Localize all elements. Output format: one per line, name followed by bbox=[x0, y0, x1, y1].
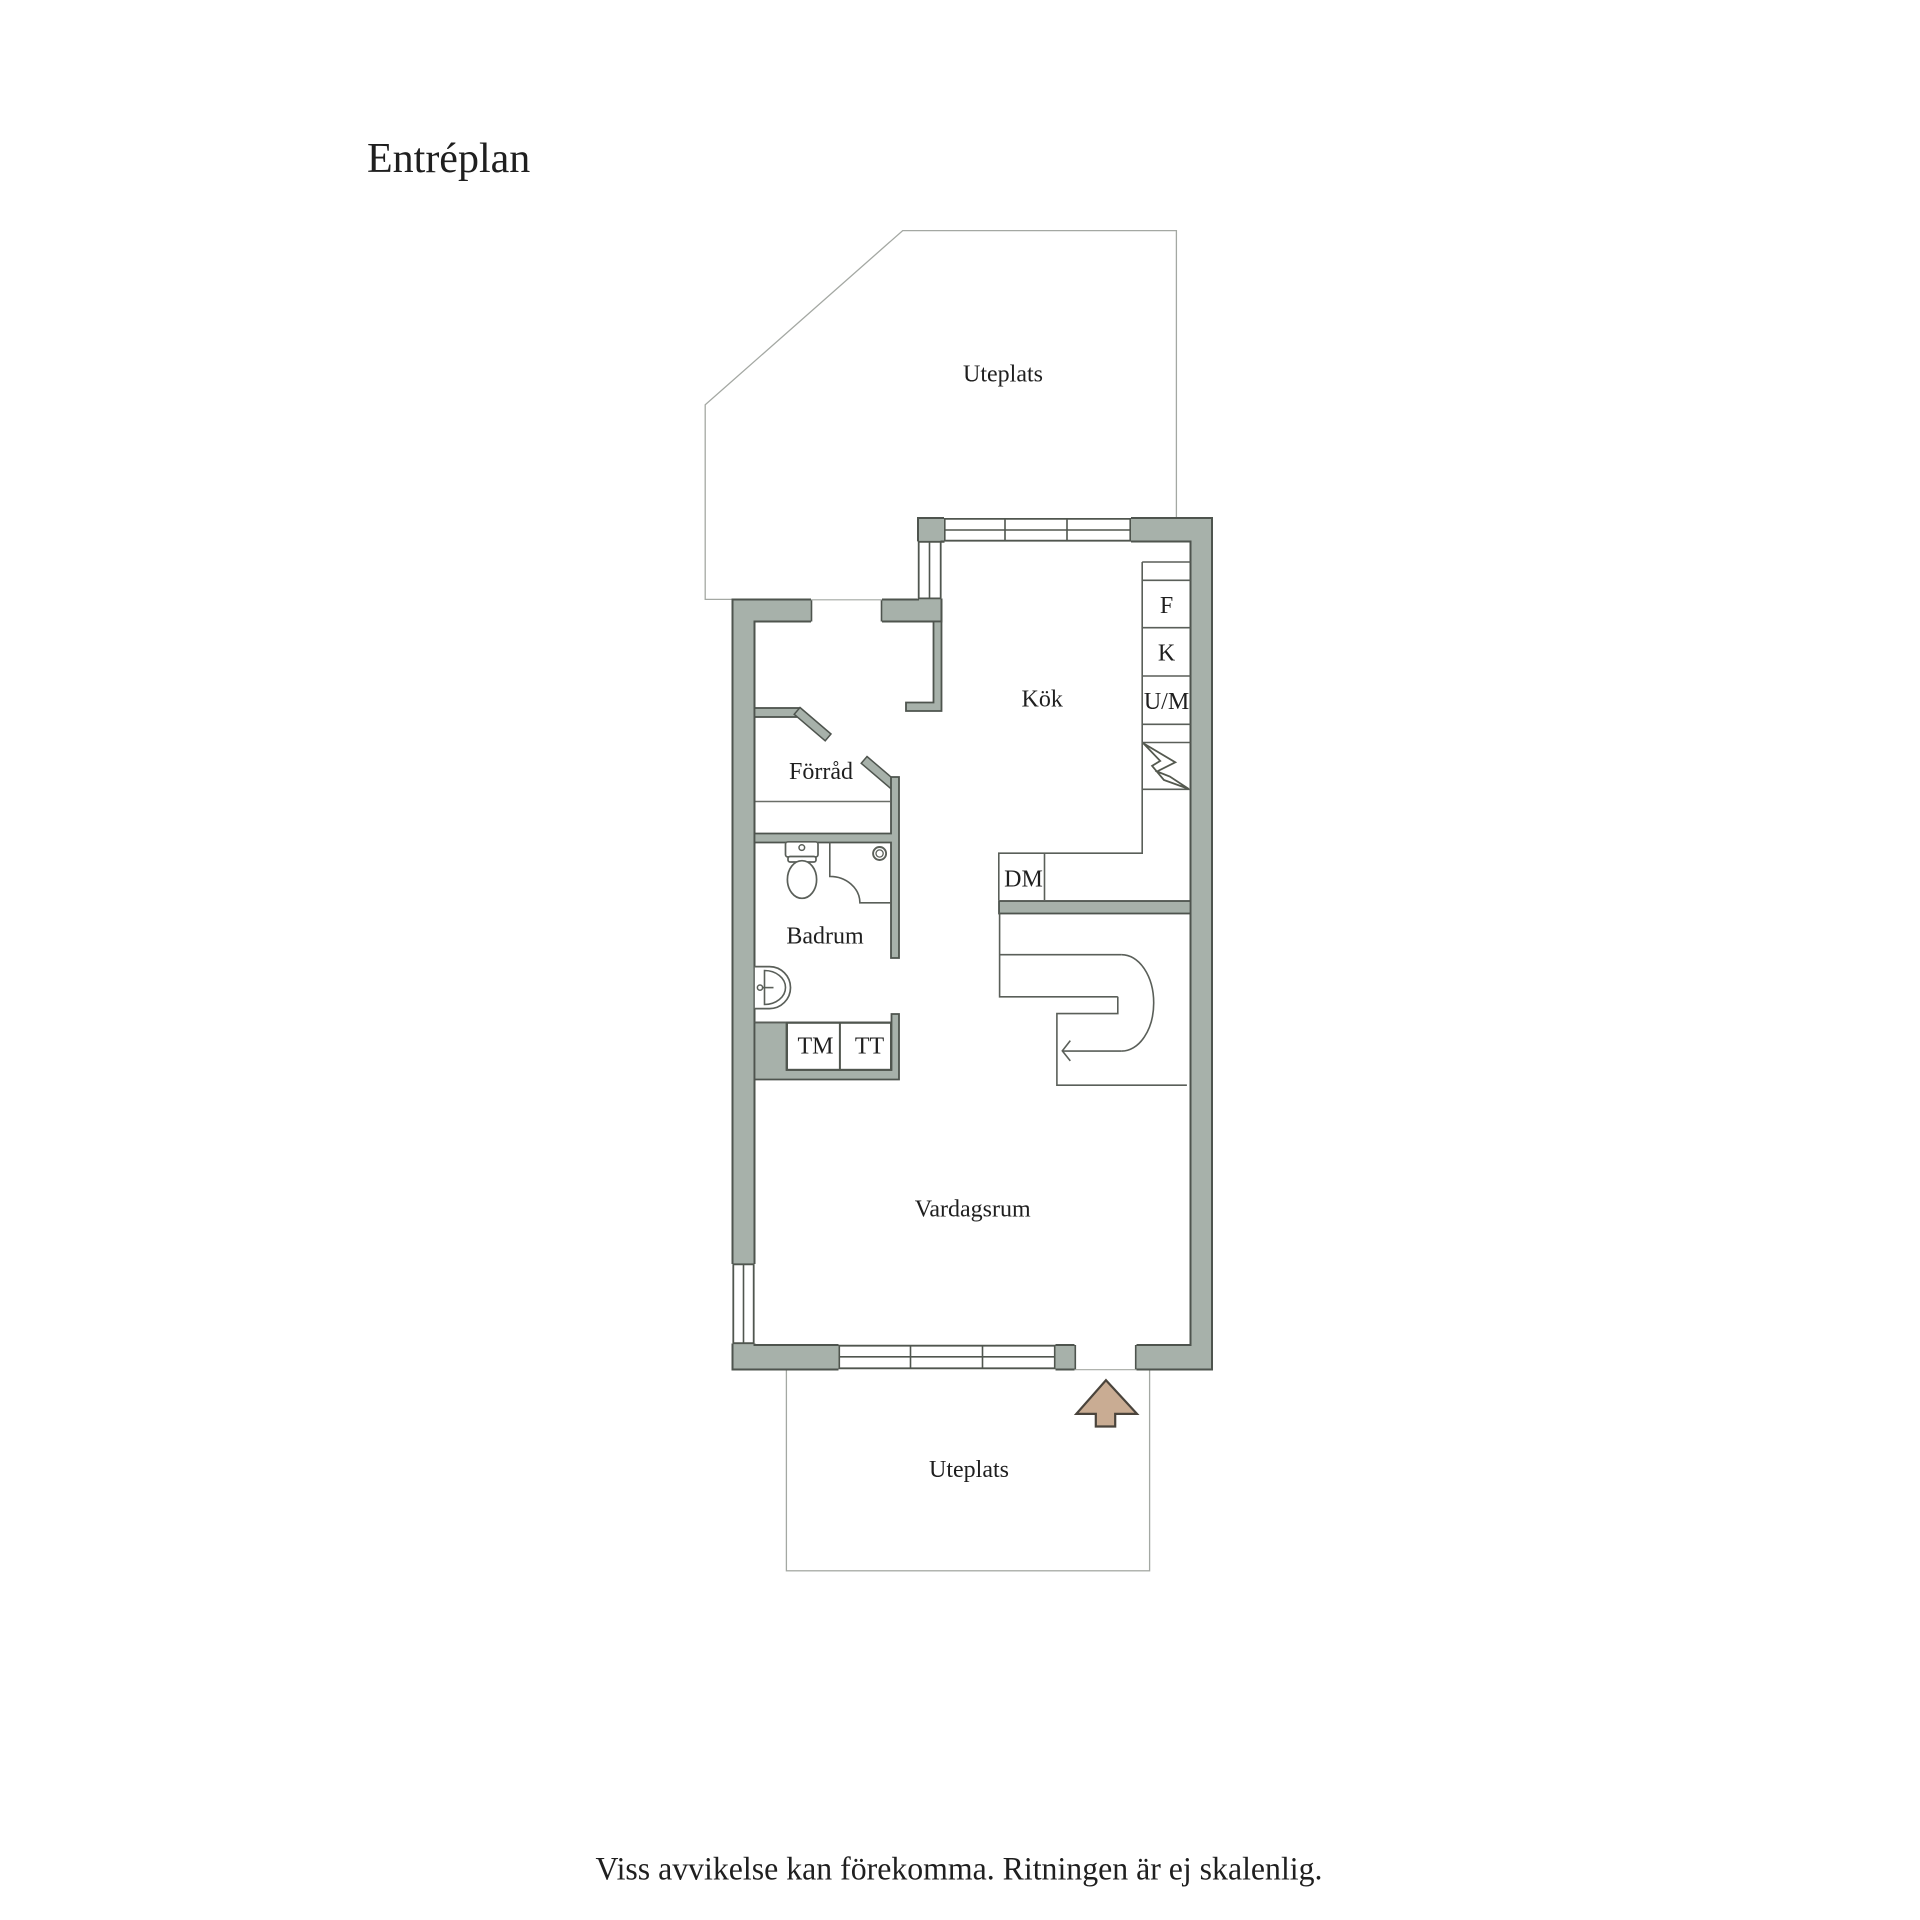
svg-text:Viss avvikelse kan förekomma.: Viss avvikelse kan förekomma. Ritningen … bbox=[596, 1852, 1323, 1888]
svg-text:Kök: Kök bbox=[1022, 686, 1063, 712]
svg-text:Förråd: Förråd bbox=[789, 759, 853, 785]
svg-text:F: F bbox=[1160, 593, 1173, 619]
svg-text:Entréplan: Entréplan bbox=[367, 136, 530, 182]
svg-text:Uteplats: Uteplats bbox=[929, 1457, 1009, 1483]
svg-text:DM: DM bbox=[1004, 867, 1043, 893]
svg-text:TM: TM bbox=[798, 1034, 834, 1060]
svg-text:TT: TT bbox=[855, 1034, 885, 1060]
svg-text:Vardagsrum: Vardagsrum bbox=[915, 1196, 1031, 1222]
svg-text:K: K bbox=[1158, 641, 1176, 667]
svg-text:Badrum: Badrum bbox=[786, 924, 864, 950]
svg-text:U/M: U/M bbox=[1144, 689, 1189, 715]
svg-text:Uteplats: Uteplats bbox=[963, 362, 1043, 388]
